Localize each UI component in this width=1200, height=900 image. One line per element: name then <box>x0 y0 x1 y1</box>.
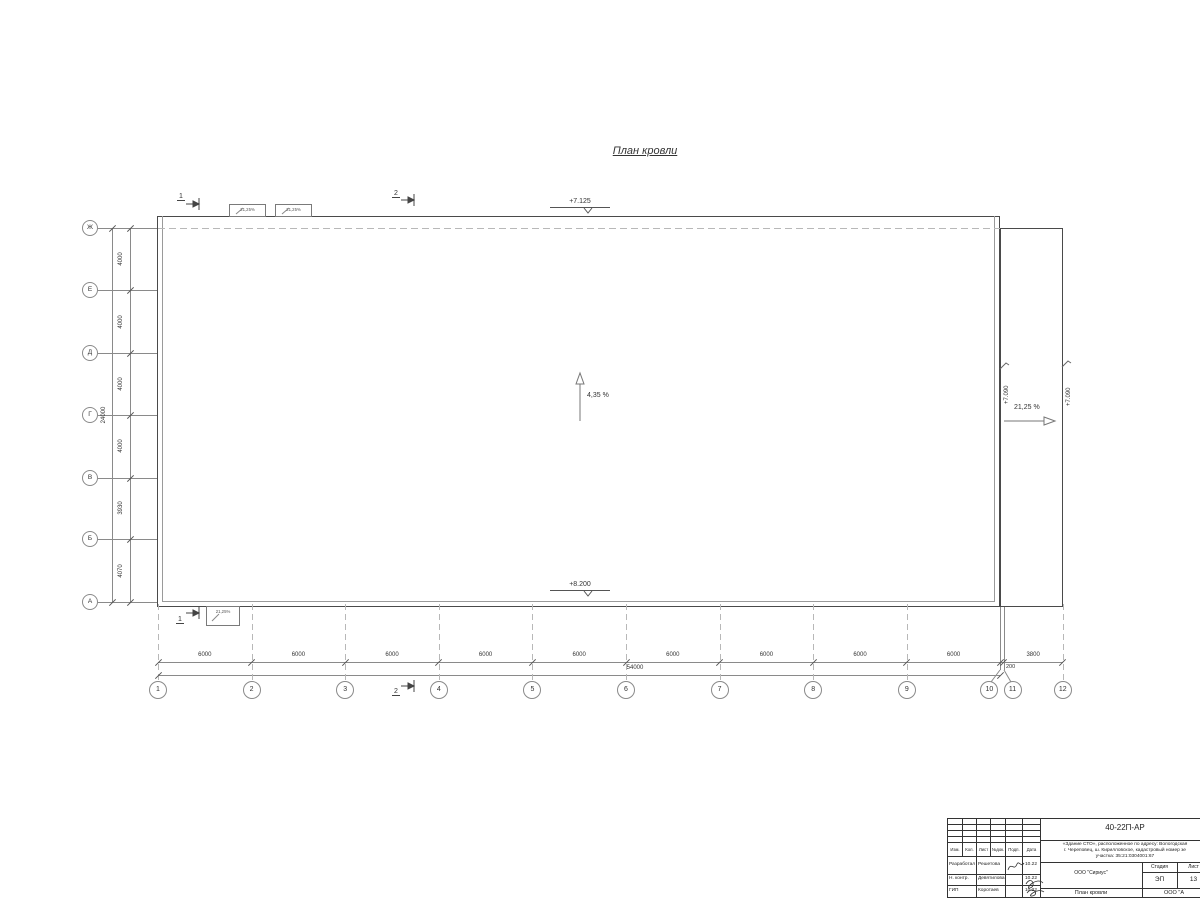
axis-line-zh-dashed <box>158 228 1000 229</box>
tb-row-name: Коротаев <box>978 888 999 893</box>
section-mark-2-bottom: 2 <box>392 688 400 696</box>
section-arrow-2-bottom <box>401 680 414 692</box>
dim-label-bottom: 6000 <box>648 652 698 658</box>
tb-col-izm: Изм. <box>948 847 962 852</box>
dim-label-bottom: 6000 <box>554 652 604 658</box>
tb-row-date: 10.22 <box>1022 862 1040 867</box>
axis-circle-1: 1 <box>149 681 167 699</box>
axis-leader-row-Д <box>98 353 157 354</box>
tb-line <box>947 897 1200 898</box>
tb-line <box>1022 818 1023 898</box>
tb-line <box>947 818 1200 819</box>
tb-sheet-title: План кровли <box>1040 890 1142 896</box>
dim-label-gap: 200 <box>1006 664 1015 670</box>
tb-row-name: Девятилова <box>978 876 1005 881</box>
axis-extension-7 <box>720 604 721 682</box>
canopy-slope-label: 21,25% <box>207 609 239 614</box>
axis-circle-Б: Б <box>82 531 98 547</box>
axis-circle-12: 12 <box>1054 681 1072 699</box>
dim-label-left: 4000 <box>118 440 124 453</box>
level-check-top-icon <box>584 208 592 213</box>
canopy-slope-label: 21,25% <box>276 207 311 212</box>
axis-circle-В: В <box>82 470 98 486</box>
tb-row-date: 10.22 <box>1022 876 1040 881</box>
dim-label-left: 4000 <box>118 253 124 266</box>
tb-sheet-label: Лист <box>1177 864 1200 870</box>
elevation-mark-right-a: +7.090 <box>1004 385 1010 404</box>
elevation-mark-right-b: +7.090 <box>1066 387 1072 406</box>
axis-circle-10: 10 <box>980 681 998 699</box>
canopy-top-2: 21,25% <box>275 204 312 217</box>
tb-col-podp: Подп. <box>1006 847 1022 852</box>
dim-label-bottom: 6000 <box>461 652 511 658</box>
dim-label-left: 4000 <box>118 315 124 328</box>
section-arrow-1-top <box>186 198 199 210</box>
tb-col-kol: Кол. <box>963 847 976 852</box>
drawing-title: План кровли <box>575 145 715 157</box>
tb-stage-value: ЭП <box>1142 876 1177 883</box>
dim-line-bottom-segments <box>158 662 1063 663</box>
tb-line <box>947 885 1040 886</box>
axis-circle-9: 9 <box>898 681 916 699</box>
tb-col-list: Лист <box>977 847 990 852</box>
tb-line <box>947 824 1040 825</box>
tb-col-data: Дата <box>1023 847 1040 852</box>
dim-label-bottom: 6000 <box>741 652 791 658</box>
tb-project-desc-2: г. Череповец, ш. Кирилловское, кадастров… <box>1041 848 1200 853</box>
tb-stage-label: Стадия <box>1142 864 1177 870</box>
tb-line <box>1040 888 1200 889</box>
tb-row-role: Н. контр. <box>949 876 969 881</box>
tb-col-ndok: №док. <box>991 847 1005 852</box>
axis-leader-row-В <box>98 478 157 479</box>
elevation-mark-top: +7.125 <box>550 197 610 208</box>
tb-project-desc-3: участка: 35:21:0304001:67 <box>1041 854 1200 859</box>
axis-extension-8 <box>813 604 814 682</box>
axis-circle-А: А <box>82 594 98 610</box>
section-arrow-2-top <box>401 194 414 206</box>
roof-outline-extension <box>1000 228 1063 607</box>
tb-line <box>1040 840 1200 841</box>
tb-line <box>947 842 1040 843</box>
tb-line <box>1142 872 1200 873</box>
dim-label-bottom-total: 54000 <box>615 665 655 671</box>
drawing-sheet: План кровли 21,25% 21,25% 21,25% +7.125 … <box>0 0 1200 900</box>
tb-line <box>947 830 1040 831</box>
axis-circle-Г: Г <box>82 407 98 423</box>
dim-label-bottom: 6000 <box>273 652 323 658</box>
tb-org2: ООО "А <box>1164 890 1184 896</box>
axis-circle-5: 5 <box>523 681 541 699</box>
axis-11-leader <box>1004 670 1011 682</box>
tb-row-role: Разработал <box>949 862 975 867</box>
axis-circle-11: 11 <box>1004 681 1022 699</box>
dim-label-left: 3930 <box>118 502 124 515</box>
slope-label-main: 4,35 % <box>587 392 609 399</box>
axis-extension-1 <box>158 604 159 682</box>
tb-line <box>947 856 1040 857</box>
dim-label-bottom: 3800 <box>1008 652 1058 658</box>
tb-line <box>947 836 1040 837</box>
axis-circle-3: 3 <box>336 681 354 699</box>
tb-project-desc-1: «Здание СТО», расположенное по адресу: В… <box>1041 842 1200 847</box>
axis-circle-Е: Е <box>82 282 98 298</box>
slope-label-extension: 21,25 % <box>1014 404 1040 411</box>
tb-org: ООО "Сириус" <box>1040 870 1142 876</box>
section-mark-1-top: 1 <box>177 193 185 201</box>
elevation-tick-right-b-icon <box>1062 361 1071 367</box>
tb-row-role: ГИП <box>949 888 959 893</box>
tb-line <box>976 818 977 898</box>
dim-label-bottom: 6000 <box>180 652 230 658</box>
section-mark-1-bottom: 1 <box>176 616 184 624</box>
axis-extension-3 <box>345 604 346 682</box>
dim-tick <box>997 672 1004 679</box>
canopy-top-1: 21,25% <box>229 204 266 217</box>
axis-circle-Д: Д <box>82 345 98 361</box>
tb-row-name: Решетова <box>978 862 1000 867</box>
canopy-slope-label: 21,25% <box>230 207 265 212</box>
axis-extension-4 <box>439 604 440 682</box>
tb-line <box>1040 862 1200 863</box>
axis-extension-2 <box>252 604 253 682</box>
tb-sheet-value: 13 <box>1177 876 1200 883</box>
axis-extension-12 <box>1063 604 1064 682</box>
dim-label-bottom: 6000 <box>835 652 885 658</box>
axis-circle-2: 2 <box>243 681 261 699</box>
axis-circle-8: 8 <box>804 681 822 699</box>
tb-doc-number: 40-22П-АР <box>1040 823 1200 832</box>
axis-extension-9 <box>907 604 908 682</box>
dim-label-left: 4000 <box>118 377 124 390</box>
canopy-bottom-1: 21,25% <box>206 606 240 626</box>
axis-leader-row-Б <box>98 539 157 540</box>
axis-circle-Ж: Ж <box>82 220 98 236</box>
axis-circle-7: 7 <box>711 681 729 699</box>
axis-circle-4: 4 <box>430 681 448 699</box>
tb-row-date: 10.22 <box>1022 888 1040 893</box>
axis-circle-6: 6 <box>617 681 635 699</box>
dim-label-left-total: 24000 <box>101 407 107 424</box>
axis-extension-5 <box>532 604 533 682</box>
dim-label-left: 4070 <box>118 564 124 577</box>
dim-label-bottom: 6000 <box>929 652 979 658</box>
section-mark-2-top: 2 <box>392 190 400 198</box>
tb-line <box>1005 818 1006 898</box>
tb-line <box>947 818 948 898</box>
tb-line <box>947 874 1040 875</box>
dim-line-bottom-total <box>158 675 1000 676</box>
roof-parapet-inner-line <box>162 216 995 602</box>
elevation-mark-bottom: +8.200 <box>550 580 610 591</box>
dim-label-bottom: 6000 <box>367 652 417 658</box>
section-arrow-1-bottom <box>186 607 199 619</box>
